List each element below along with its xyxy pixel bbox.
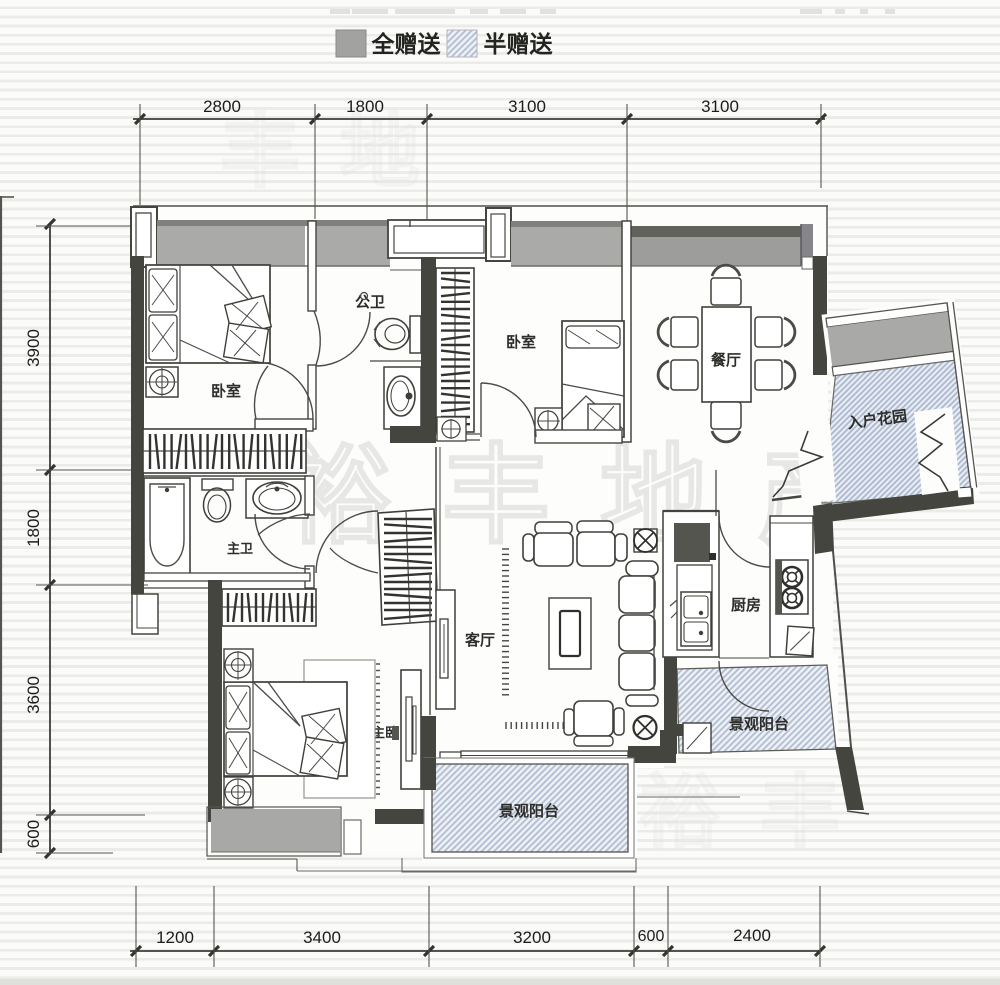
svg-text:客厅: 客厅 [464,631,495,649]
svg-text:卧室: 卧室 [211,382,241,400]
svg-text:3600: 3600 [24,676,43,714]
svg-text:600: 600 [24,820,43,848]
svg-text:3400: 3400 [303,928,341,947]
svg-text:景观阳台: 景观阳台 [499,802,559,820]
svg-text:2800: 2800 [203,97,241,116]
svg-text:1800: 1800 [346,97,384,116]
svg-text:1800: 1800 [24,509,43,547]
svg-text:主卫: 主卫 [227,541,253,556]
svg-text:半赠送: 半赠送 [484,31,553,57]
svg-text:3100: 3100 [508,97,546,116]
svg-text:餐厅: 餐厅 [711,351,741,369]
svg-text:3100: 3100 [701,97,739,116]
svg-text:公卫: 公卫 [355,294,385,311]
svg-text:600: 600 [638,928,665,945]
svg-text:全赠送: 全赠送 [371,31,441,57]
svg-text:1200: 1200 [156,928,194,947]
svg-text:厨房: 厨房 [731,596,761,614]
svg-text:3200: 3200 [513,928,551,947]
svg-text:2400: 2400 [733,926,771,945]
svg-text:3900: 3900 [24,329,43,367]
svg-text:卧室: 卧室 [506,333,536,351]
svg-text:景观阳台: 景观阳台 [729,715,789,733]
